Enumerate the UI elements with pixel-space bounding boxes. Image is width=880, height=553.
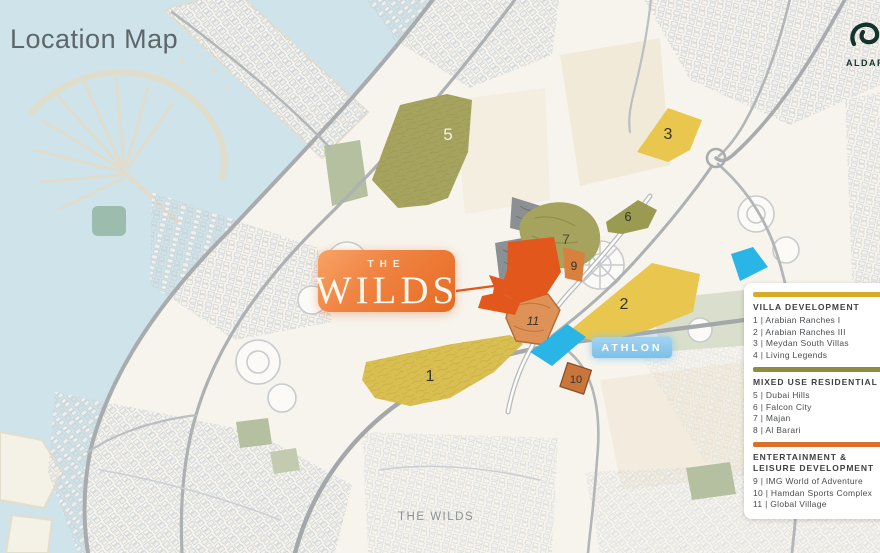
label-region-5: 5 — [443, 125, 452, 144]
legend-title-villa: VILLA DEVELOPMENT — [753, 302, 880, 313]
legend-section-mixed-use: MIXED USE RESIDENTIAL 5 | Dubai Hills 6 … — [753, 367, 880, 436]
legend-bar-villa — [753, 292, 880, 297]
label-region-7: 7 — [562, 231, 570, 247]
legend-item: 11 | Global Village — [753, 499, 880, 511]
wilds-badge: THE WILDS — [318, 250, 455, 312]
legend-item: 10 | Hamdan Sports Complex — [753, 488, 880, 500]
brand-logo: ALDAR — [846, 22, 880, 68]
label-region-9: 9 — [571, 259, 578, 273]
location-map-page: { "title": "Location Map", "logo": { "br… — [0, 0, 880, 553]
label-region-1: 1 — [426, 368, 435, 385]
legend-title-mixed-use: MIXED USE RESIDENTIAL — [753, 377, 880, 388]
legend-section-villa: VILLA DEVELOPMENT 1 | Arabian Ranches I … — [753, 292, 880, 361]
legend-bar-mixed-use — [753, 367, 880, 372]
legend-item: 1 | Arabian Ranches I — [753, 315, 880, 327]
athlon-label: ATHLON — [592, 337, 672, 358]
bottom-map-label: THE WILDS — [398, 511, 474, 523]
legend-item: 7 | Majan — [753, 413, 880, 425]
aldar-mark-icon — [846, 22, 880, 52]
legend-item: 9 | IMG World of Adventure — [753, 476, 880, 488]
label-region-3: 3 — [664, 126, 673, 143]
legend-item: 8 | Al Barari — [753, 425, 880, 437]
brand-name: ALDAR — [846, 58, 880, 68]
label-region-6: 6 — [624, 209, 631, 224]
label-region-11: 11 — [527, 314, 539, 328]
legend-title-entertainment: ENTERTAINMENT & LEISURE DEVELOPMENT — [753, 452, 880, 474]
legend-item: 5 | Dubai Hills — [753, 390, 880, 402]
badge-wilds-text: WILDS — [315, 271, 458, 310]
legend-item: 4 | Living Legends — [753, 350, 880, 362]
legend-item: 3 | Meydan South Villas — [753, 338, 880, 350]
legend-panel: VILLA DEVELOPMENT 1 | Arabian Ranches I … — [744, 283, 880, 519]
label-region-2: 2 — [620, 296, 629, 313]
legend-item: 6 | Falcon City — [753, 402, 880, 414]
legend-bar-entertainment — [753, 442, 880, 447]
legend-item: 2 | Arabian Ranches III — [753, 327, 880, 339]
label-region-10: 10 — [570, 374, 582, 386]
legend-section-entertainment: ENTERTAINMENT & LEISURE DEVELOPMENT 9 | … — [753, 442, 880, 511]
page-title: Location Map — [10, 24, 178, 55]
